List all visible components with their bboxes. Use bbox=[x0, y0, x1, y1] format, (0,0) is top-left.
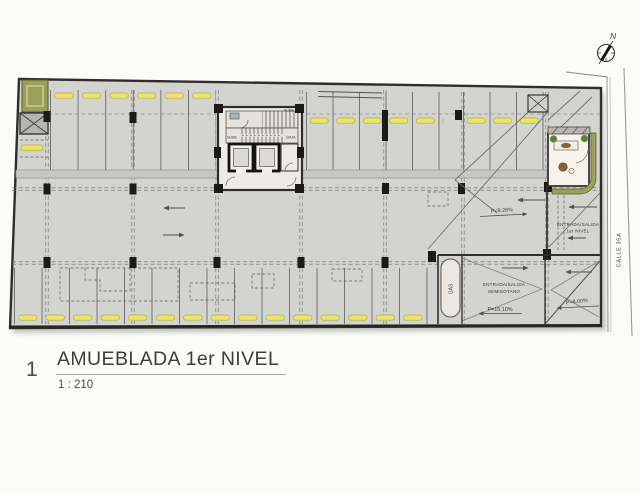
elevator-shaft bbox=[229, 144, 253, 171]
plant-icon bbox=[550, 136, 557, 143]
parking-stalls-top-middle bbox=[306, 92, 444, 170]
entrance-basement-line1: ENTRADA/SALIDA bbox=[483, 282, 526, 287]
parking-stalls-top-left bbox=[50, 90, 216, 170]
aisle-edge-band bbox=[302, 170, 547, 178]
entrance-basement-line2: SEMISOTANO bbox=[488, 289, 521, 294]
office-room bbox=[548, 127, 596, 194]
equipment-icon bbox=[230, 113, 239, 119]
drawing-number: 1 bbox=[26, 358, 38, 382]
entrance-level1-line1: ENTRADA/SALIDA bbox=[557, 222, 600, 227]
floor-plan-svg: GAS SUBE SUBE BAJA bbox=[0, 0, 640, 494]
elevator-shaft bbox=[255, 144, 279, 171]
entrance-level1-line2: 1er NIVEL bbox=[567, 229, 590, 234]
drawing-title: AMUEBLADA 1er NIVEL bbox=[57, 348, 279, 371]
slope-basement-label: P=15.10% bbox=[487, 307, 512, 313]
stairs-up-top-label: SUBE bbox=[284, 109, 295, 113]
stairs-down-label: BAJA bbox=[286, 135, 296, 139]
chair bbox=[569, 168, 574, 173]
north-label: N bbox=[610, 31, 617, 41]
round-table bbox=[559, 163, 567, 171]
gas-label: GAS bbox=[449, 283, 455, 294]
title-underline bbox=[56, 374, 286, 375]
desk-top bbox=[561, 143, 571, 148]
drawing-sheet: GAS SUBE SUBE BAJA bbox=[0, 0, 640, 494]
elevator-core: SUBE SUBE BAJA bbox=[214, 104, 304, 193]
wall-hatch bbox=[548, 127, 590, 134]
gas-tank: GAS bbox=[441, 259, 460, 317]
stairs-up-label: SUBE bbox=[227, 135, 238, 139]
planter-box bbox=[22, 80, 48, 112]
north-arrow: N bbox=[598, 31, 618, 64]
plant-icon bbox=[581, 135, 588, 142]
aisle-edge-band bbox=[16, 170, 218, 178]
street-name-label: CALLE 35A bbox=[617, 233, 623, 268]
shaft-right-icon bbox=[528, 95, 548, 112]
drawing-scale: 1 : 210 bbox=[58, 379, 93, 391]
parking-stalls-bottom bbox=[14, 268, 428, 324]
